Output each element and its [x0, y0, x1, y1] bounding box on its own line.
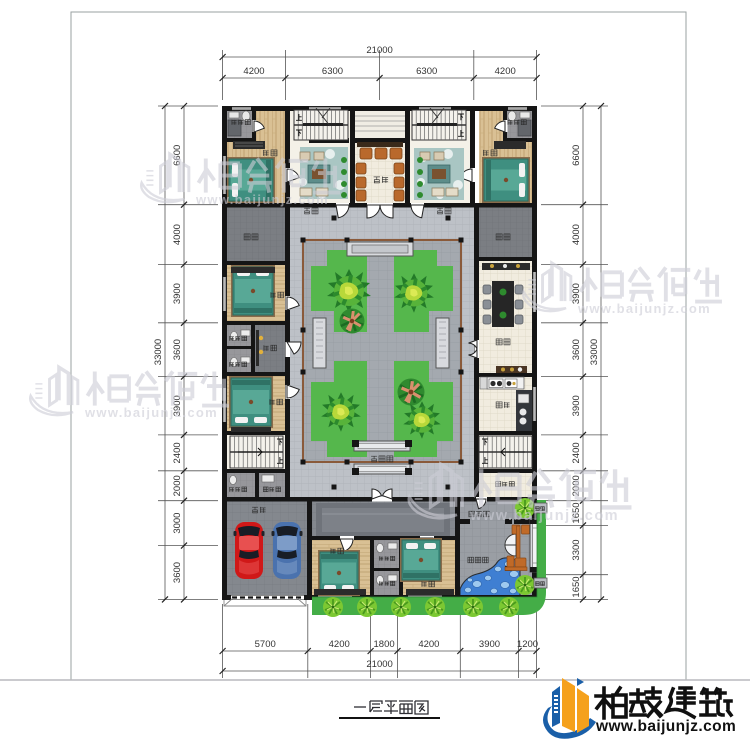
svg-text:6300: 6300: [322, 66, 343, 77]
svg-text:www.baijunjz.com: www.baijunjz.com: [595, 718, 736, 735]
svg-text:6300: 6300: [416, 66, 437, 77]
svg-text:5700: 5700: [255, 639, 276, 650]
svg-text:1800: 1800: [374, 639, 395, 650]
svg-text:6600: 6600: [571, 145, 582, 166]
svg-text:4200: 4200: [495, 66, 516, 77]
svg-text:3900: 3900: [479, 639, 500, 650]
svg-text:3300: 3300: [571, 539, 582, 560]
svg-text:2400: 2400: [172, 442, 183, 463]
svg-text:3600: 3600: [172, 339, 183, 360]
svg-text:3600: 3600: [172, 562, 183, 583]
svg-text:33000: 33000: [589, 339, 600, 365]
svg-text:www.baijunjz.com: www.baijunjz.com: [84, 405, 218, 420]
svg-text:21000: 21000: [366, 45, 392, 56]
svg-text:www.baijunjz.com: www.baijunjz.com: [577, 301, 711, 316]
svg-text:3600: 3600: [571, 339, 582, 360]
svg-text:2400: 2400: [571, 442, 582, 463]
svg-text:3900: 3900: [571, 395, 582, 416]
svg-text:4200: 4200: [418, 639, 439, 650]
svg-text:2000: 2000: [172, 475, 183, 496]
svg-text:www.baijunjz.com: www.baijunjz.com: [469, 508, 619, 524]
svg-text:4200: 4200: [329, 639, 350, 650]
svg-text:www.baijunjz.com: www.baijunjz.com: [195, 192, 329, 207]
svg-text:4200: 4200: [243, 66, 264, 77]
svg-text:3000: 3000: [172, 513, 183, 534]
svg-text:4000: 4000: [571, 224, 582, 245]
svg-text:1650: 1650: [571, 576, 582, 597]
svg-text:4000: 4000: [172, 224, 183, 245]
svg-text:33000: 33000: [153, 339, 164, 365]
svg-text:1200: 1200: [517, 639, 538, 650]
svg-text:21000: 21000: [366, 659, 392, 670]
svg-text:3900: 3900: [172, 283, 183, 304]
